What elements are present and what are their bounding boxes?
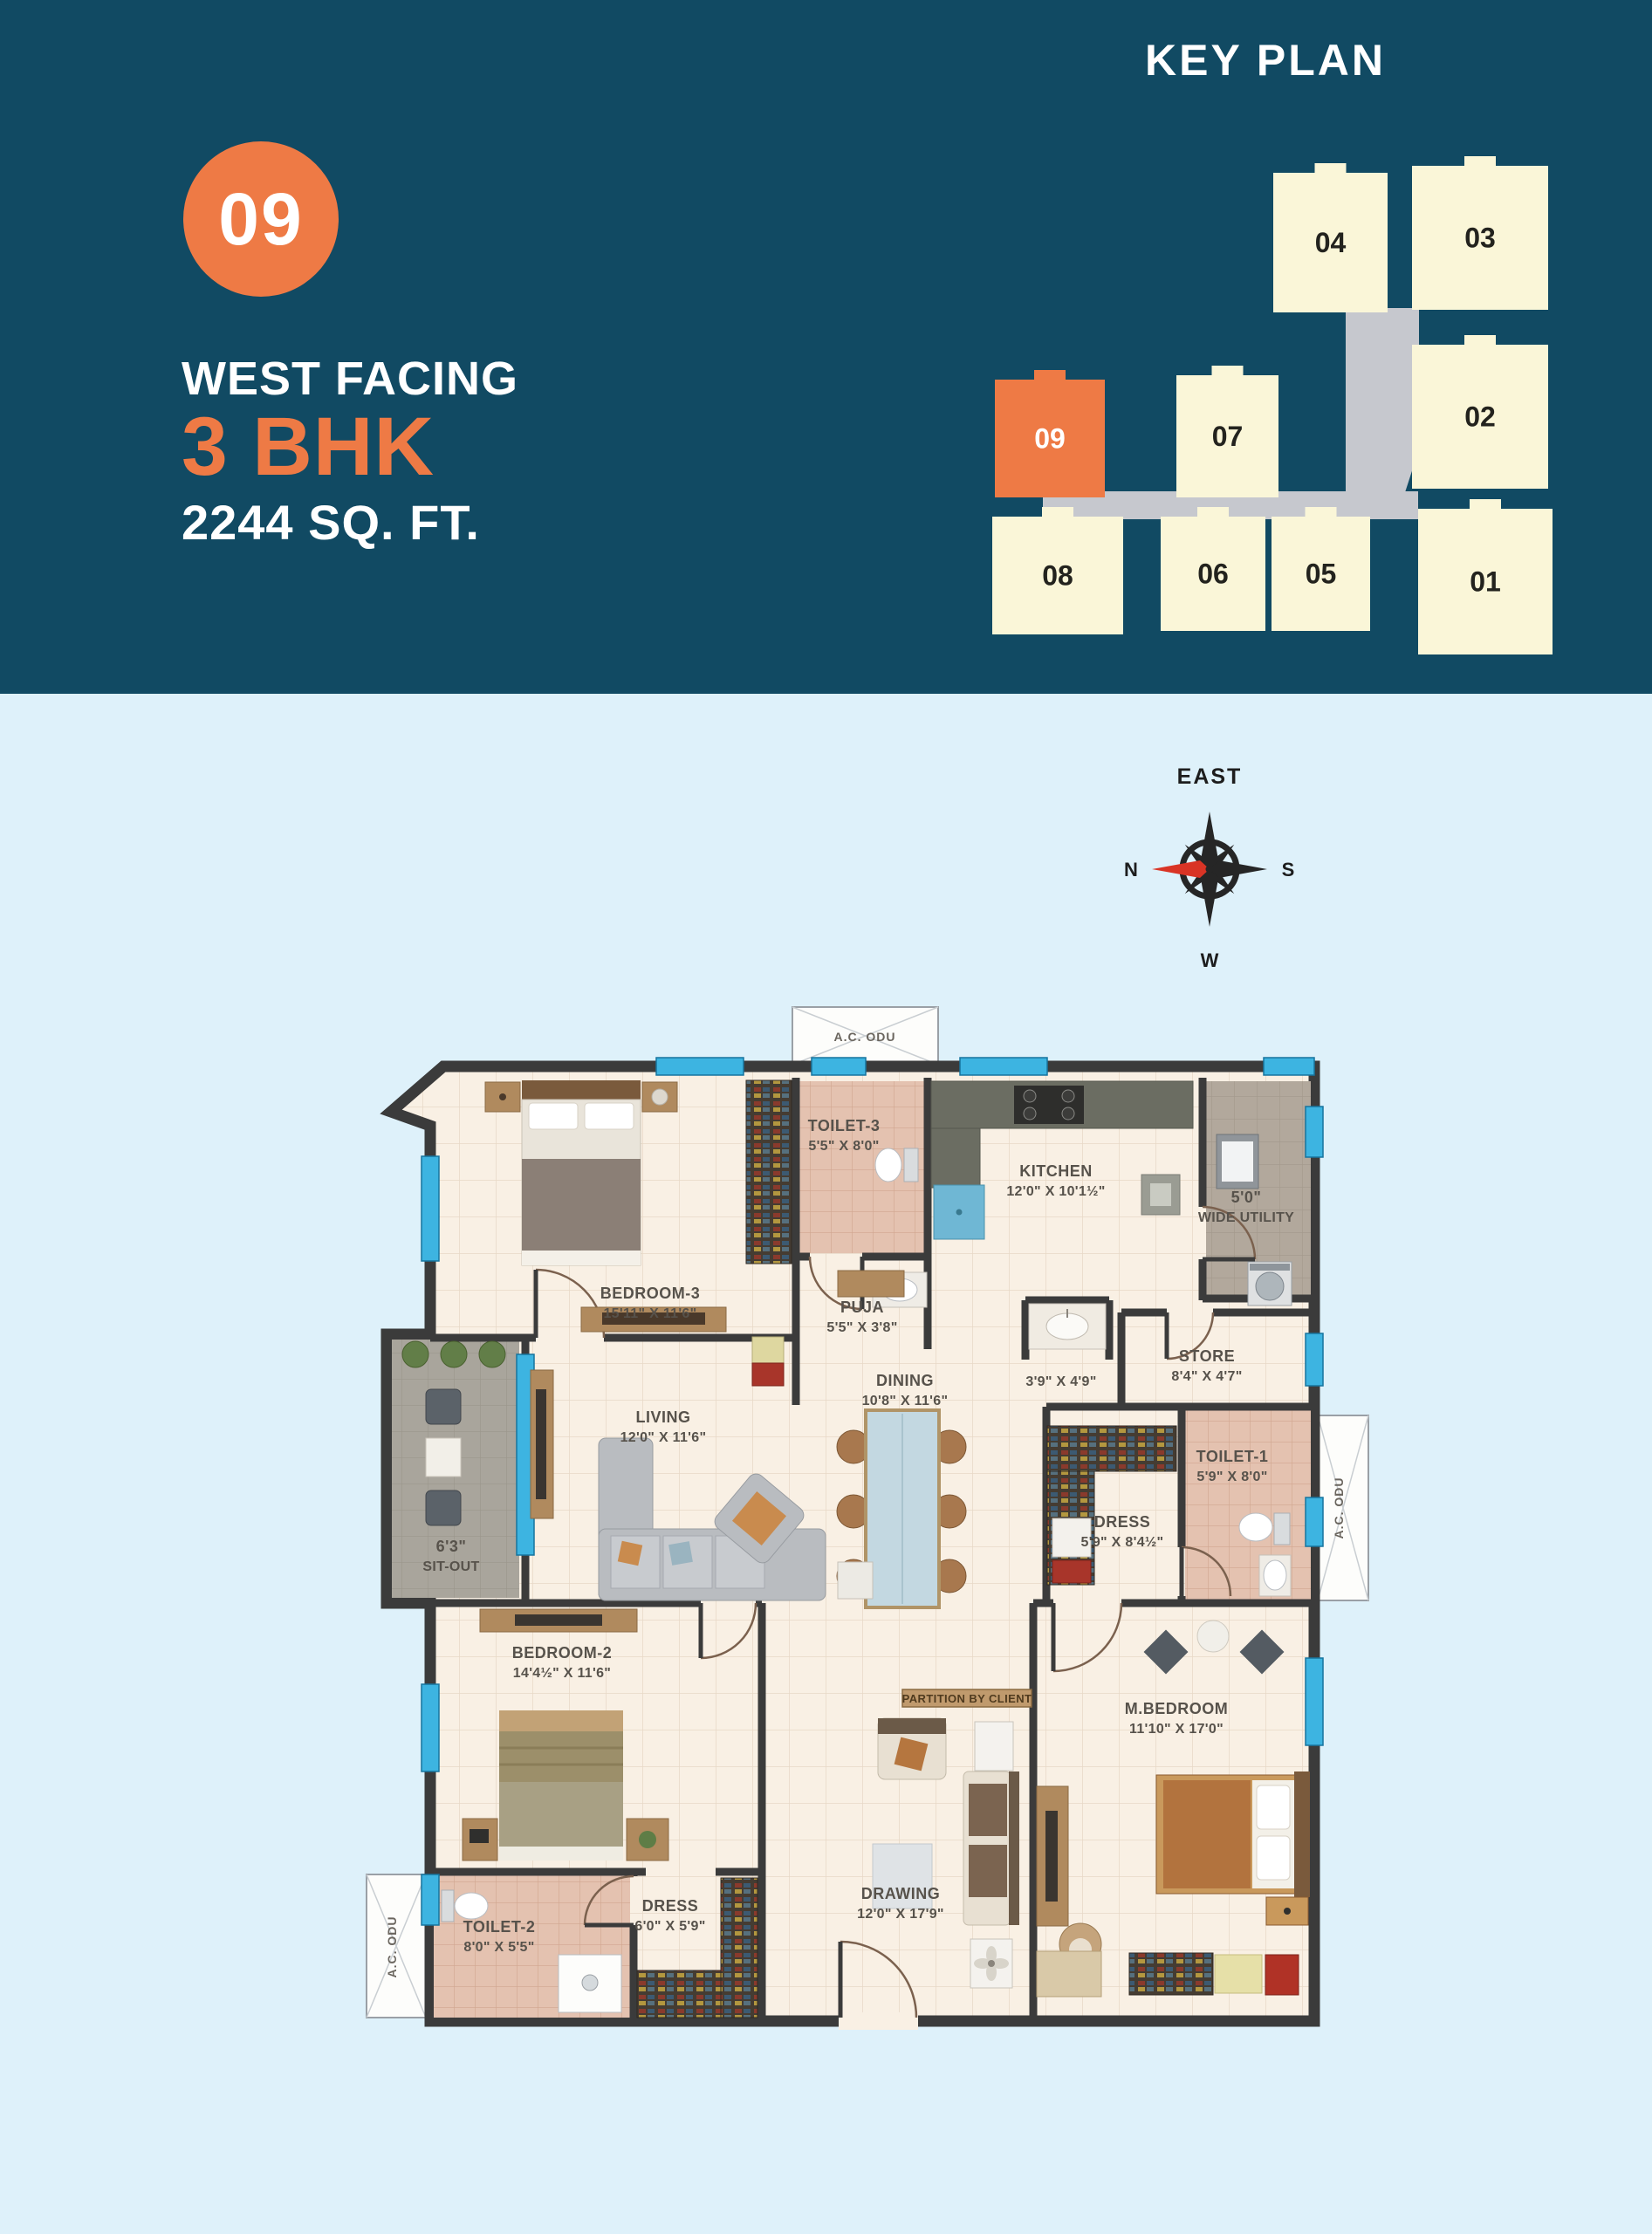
svg-text:6'3": 6'3"	[436, 1538, 467, 1555]
keyplan-unit-label-05: 05	[1306, 558, 1337, 590]
room-label-wash: 3'9" X 4'9"	[1025, 1374, 1096, 1389]
keyplan-unit-08: 08	[992, 507, 1123, 634]
svg-text:6'0" X 5'9": 6'0" X 5'9"	[634, 1919, 705, 1934]
svg-text:WIDE UTILITY: WIDE UTILITY	[1198, 1210, 1294, 1225]
svg-text:11'10" X 17'0": 11'10" X 17'0"	[1129, 1722, 1224, 1737]
svg-text:SIT-OUT: SIT-OUT	[422, 1559, 479, 1574]
keyplan-unit-label-07: 07	[1212, 421, 1244, 452]
svg-text:15'11" X 11'6": 15'11" X 11'6"	[603, 1306, 696, 1321]
bhk-label: 3 BHK	[182, 405, 518, 490]
compass-s-label: S	[1282, 859, 1295, 881]
svg-text:LIVING: LIVING	[635, 1408, 690, 1426]
keyplan-unit-05: 05	[1272, 507, 1370, 631]
floor-plan-diagram: PARTITION BY CLIENT BEDROOM-315'11" X 11…	[349, 960, 1396, 2068]
key-plan-diagram: 040302010907080605	[960, 83, 1571, 659]
svg-text:M.BEDROOM: M.BEDROOM	[1125, 1700, 1229, 1717]
svg-text:5'9" X 8'0": 5'9" X 8'0"	[1196, 1470, 1267, 1484]
svg-text:5'5" X 8'0": 5'5" X 8'0"	[808, 1139, 879, 1154]
svg-text:14'4½" X 11'6": 14'4½" X 11'6"	[513, 1666, 611, 1681]
svg-text:5'0": 5'0"	[1231, 1189, 1262, 1206]
compass: EAST N S W	[1117, 757, 1302, 970]
svg-text:10'8" X 11'6": 10'8" X 11'6"	[862, 1394, 949, 1408]
svg-text:DRESS: DRESS	[1094, 1513, 1151, 1531]
keyplan-unit-01: 01	[1418, 499, 1553, 654]
ac-odu-label-2: A.C. ODU	[385, 1916, 399, 1978]
area-label: 2244 SQ. FT.	[182, 495, 518, 551]
svg-text:12'0" X 11'6": 12'0" X 11'6"	[620, 1430, 707, 1445]
svg-text:TOILET-1: TOILET-1	[1196, 1448, 1269, 1465]
svg-text:TOILET-2: TOILET-2	[463, 1918, 536, 1936]
unit-number: 09	[218, 177, 303, 262]
keyplan-unit-07: 07	[1176, 366, 1278, 497]
svg-text:8'0" X 5'5": 8'0" X 5'5"	[463, 1940, 534, 1955]
keyplan-unit-06: 06	[1161, 507, 1265, 631]
svg-text:PUJA: PUJA	[840, 1299, 884, 1316]
keyplan-unit-02: 02	[1412, 335, 1548, 489]
ac-odu-label-1: A.C. ODU	[1332, 1477, 1346, 1539]
keyplan-unit-label-02: 02	[1464, 401, 1496, 433]
keyplan-unit-label-09: 09	[1034, 423, 1066, 455]
keyplan-unit-label-04: 04	[1315, 227, 1347, 258]
brochure-page: 09 WEST FACING 3 BHK 2244 SQ. FT. KEY PL…	[0, 0, 1652, 2234]
svg-text:DRAWING: DRAWING	[861, 1885, 941, 1902]
partition-note-text: PARTITION BY CLIENT	[902, 1692, 1032, 1705]
svg-text:BEDROOM-3: BEDROOM-3	[600, 1285, 701, 1302]
svg-text:5'9" X 8'4½": 5'9" X 8'4½"	[1081, 1535, 1164, 1550]
svg-text:TOILET-3: TOILET-3	[808, 1117, 881, 1134]
unit-number-badge: 09	[183, 141, 339, 297]
compass-rose-icon	[1152, 812, 1267, 927]
hero-banner: 09 WEST FACING 3 BHK 2244 SQ. FT. KEY PL…	[0, 0, 1652, 694]
key-plan-title: KEY PLAN	[960, 35, 1571, 86]
compass-n-label: N	[1124, 859, 1138, 881]
keyplan-unit-label-03: 03	[1464, 223, 1496, 254]
partition-note: PARTITION BY CLIENT	[902, 1689, 1032, 1707]
unit-summary: WEST FACING 3 BHK 2244 SQ. FT.	[182, 353, 518, 552]
svg-text:12'0" X 17'9": 12'0" X 17'9"	[857, 1907, 944, 1922]
svg-text:12'0" X 10'1½": 12'0" X 10'1½"	[1006, 1184, 1105, 1199]
svg-text:BEDROOM-2: BEDROOM-2	[512, 1644, 613, 1662]
compass-east-label: EAST	[1177, 764, 1243, 789]
entrance-gap	[839, 2012, 918, 2030]
keyplan-unit-09: 09	[995, 370, 1105, 497]
svg-text:5'5" X 3'8": 5'5" X 3'8"	[826, 1320, 897, 1335]
keyplan-unit-03: 03	[1412, 156, 1548, 310]
facing-label: WEST FACING	[182, 353, 518, 405]
keyplan-unit-label-06: 06	[1197, 558, 1229, 590]
ac-odu-label-0: A.C. ODU	[834, 1030, 896, 1044]
svg-text:KITCHEN: KITCHEN	[1019, 1162, 1093, 1180]
svg-text:DINING: DINING	[876, 1372, 934, 1389]
keyplan-unit-04: 04	[1273, 163, 1388, 312]
svg-text:8'4" X 4'7": 8'4" X 4'7"	[1171, 1369, 1242, 1384]
keyplan-unit-label-01: 01	[1470, 566, 1501, 598]
svg-text:STORE: STORE	[1179, 1347, 1235, 1365]
svg-text:DRESS: DRESS	[642, 1897, 699, 1915]
svg-text:3'9" X 4'9": 3'9" X 4'9"	[1025, 1374, 1096, 1389]
keyplan-unit-label-08: 08	[1042, 560, 1073, 592]
